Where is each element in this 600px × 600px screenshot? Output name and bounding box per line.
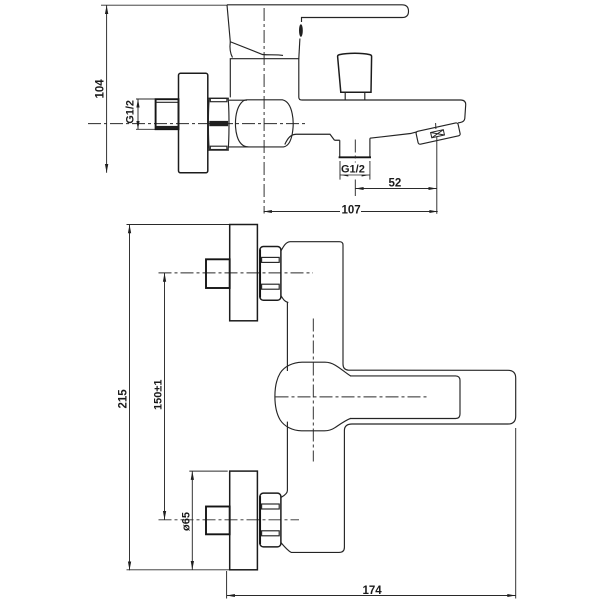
- svg-text:215: 215: [117, 389, 129, 409]
- svg-text:ø65: ø65: [181, 512, 193, 531]
- svg-text:174: 174: [363, 585, 383, 597]
- svg-text:G1/2: G1/2: [341, 163, 365, 175]
- svg-text:52: 52: [389, 178, 402, 190]
- svg-text:150±1: 150±1: [153, 379, 165, 410]
- svg-text:107: 107: [342, 204, 361, 216]
- svg-text:G1/2: G1/2: [125, 100, 137, 124]
- svg-text:104: 104: [95, 79, 107, 99]
